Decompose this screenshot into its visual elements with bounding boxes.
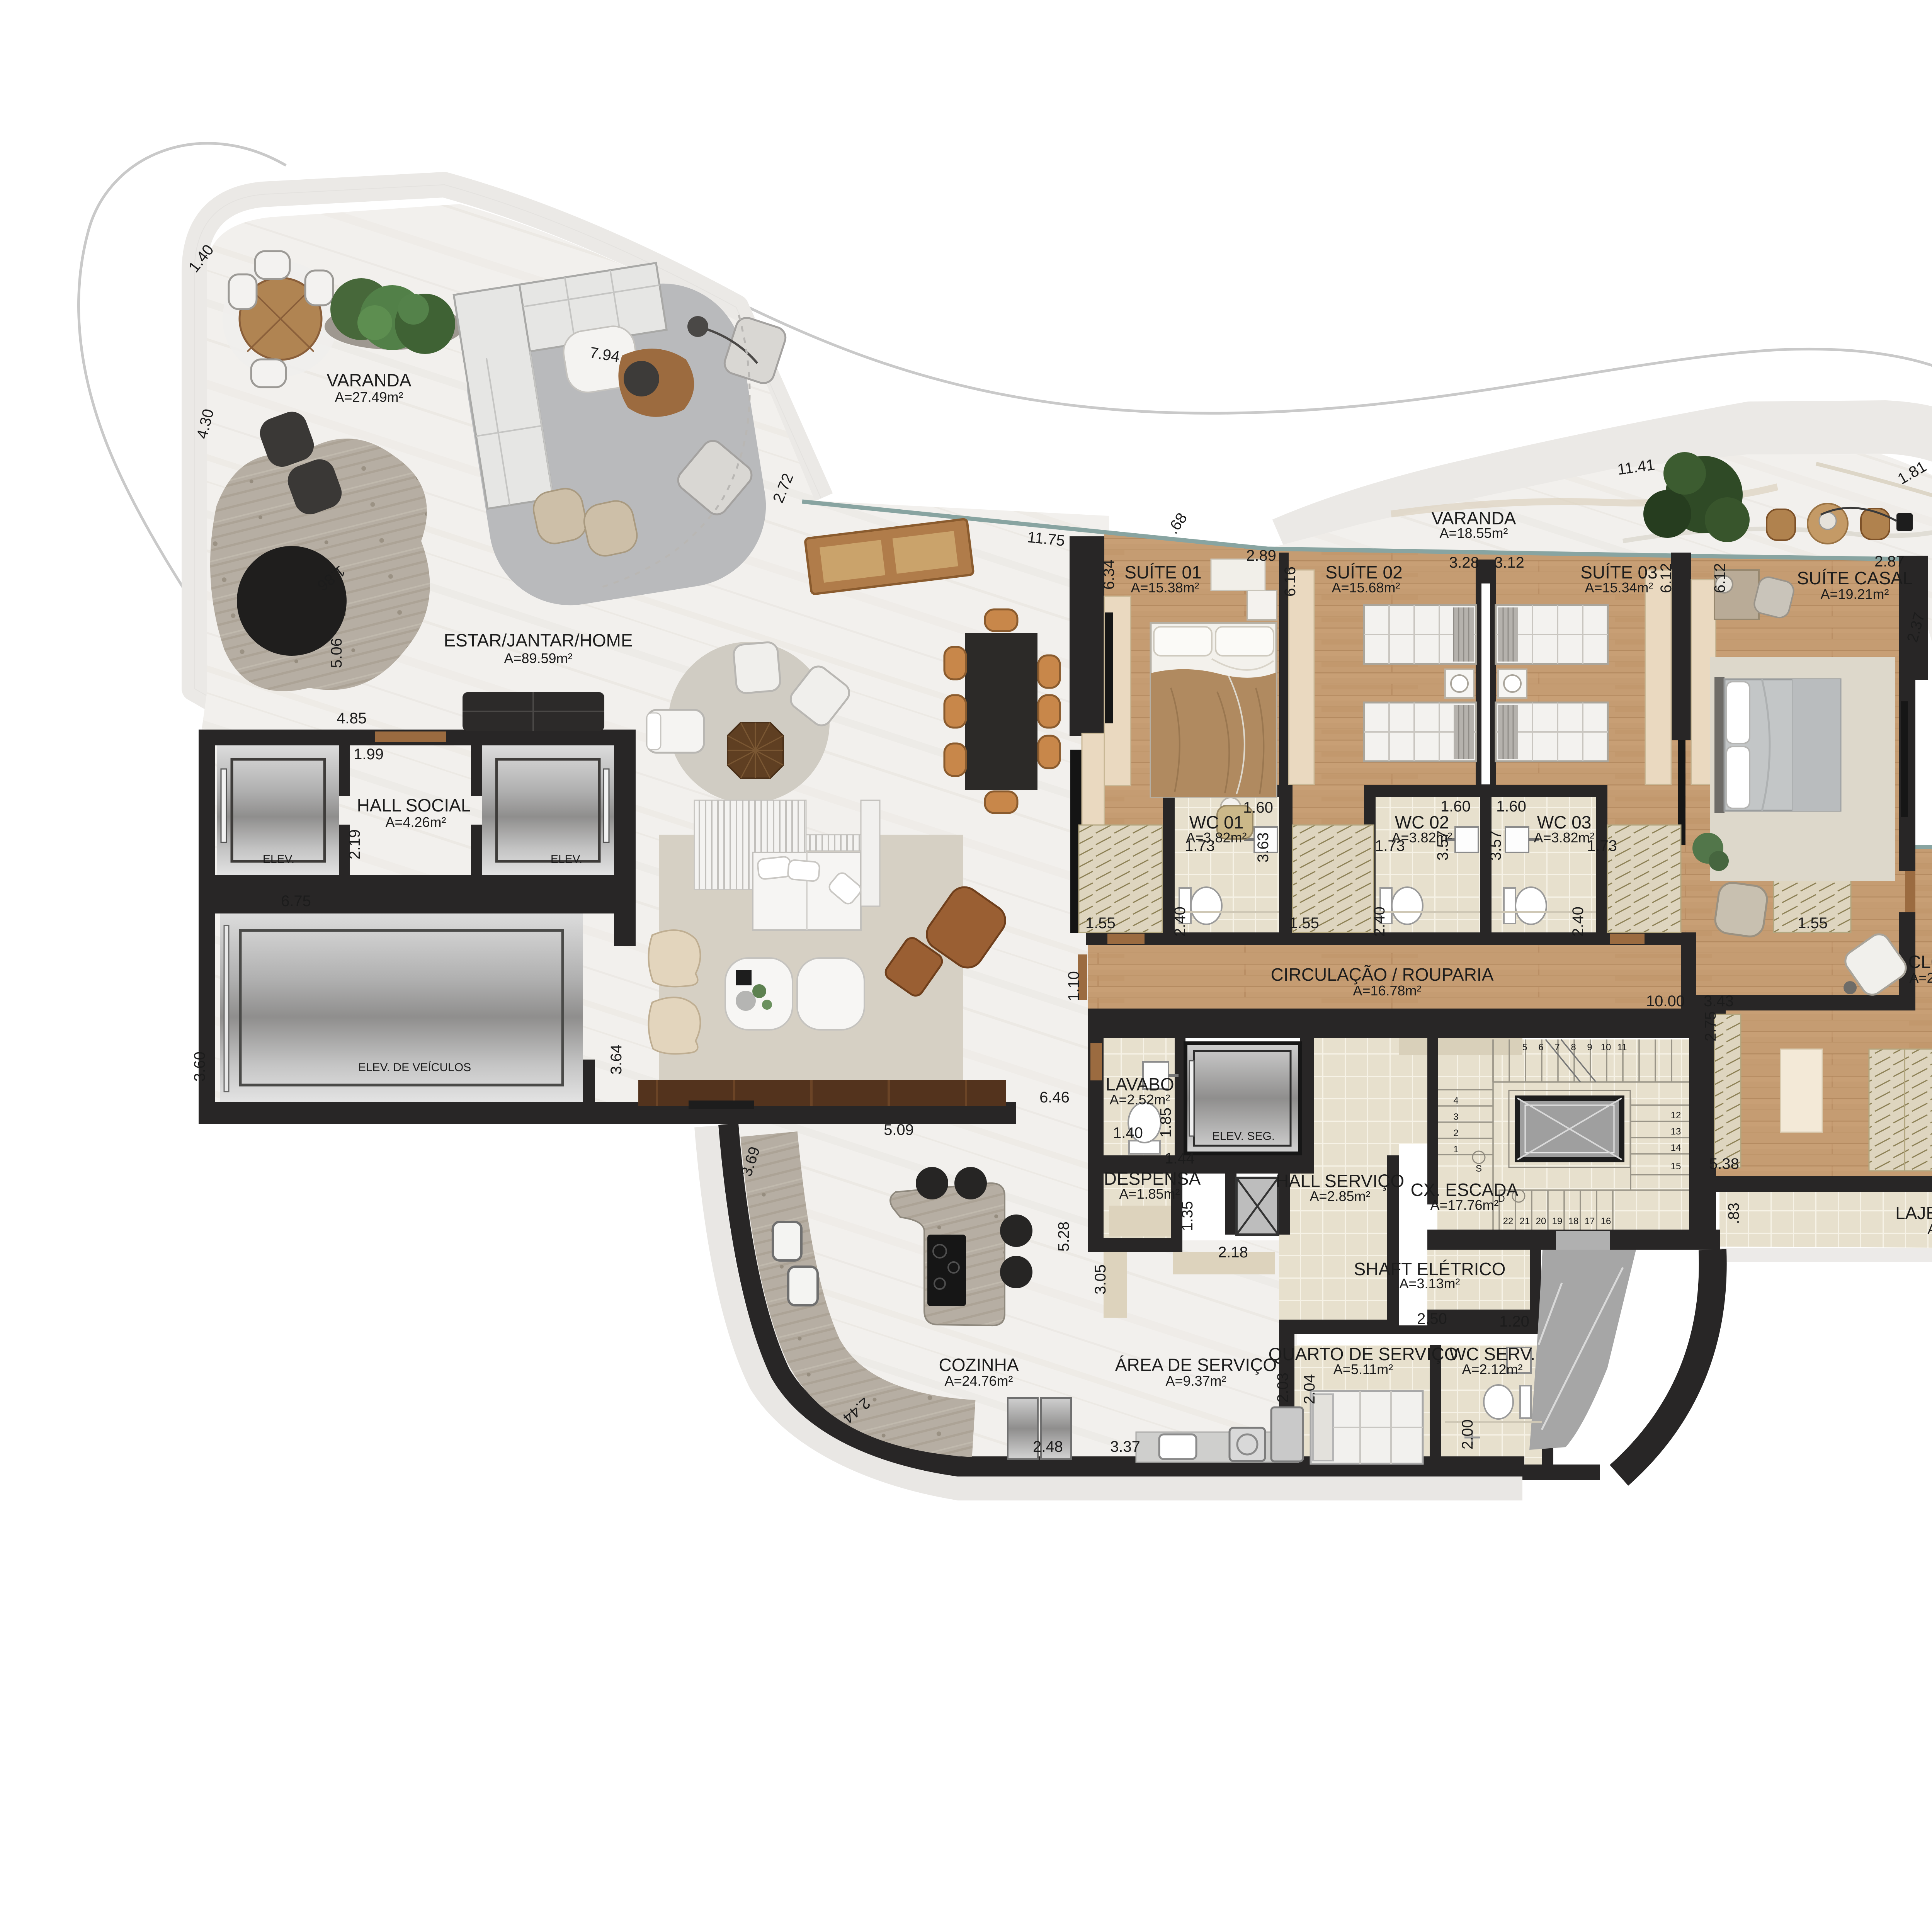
svg-text:A=9.37m²: A=9.37m² bbox=[1165, 1373, 1226, 1389]
svg-text:6.12: 6.12 bbox=[1711, 563, 1728, 593]
svg-text:3.63: 3.63 bbox=[1255, 832, 1272, 862]
svg-text:A=2.52m²: A=2.52m² bbox=[1109, 1092, 1170, 1107]
svg-text:A=3.13m²: A=3.13m² bbox=[1399, 1276, 1460, 1291]
svg-text:4: 4 bbox=[1453, 1095, 1458, 1106]
svg-text:A=89.59m²: A=89.59m² bbox=[504, 650, 572, 666]
svg-text:ELEV.: ELEV. bbox=[551, 853, 582, 866]
svg-text:ÁREA DE SERVIÇO: ÁREA DE SERVIÇO bbox=[1115, 1355, 1277, 1375]
svg-text:2.40: 2.40 bbox=[1570, 907, 1587, 937]
svg-text:A=20.04m²: A=20.04m² bbox=[1909, 970, 1932, 986]
svg-text:19: 19 bbox=[1552, 1216, 1563, 1226]
svg-text:A=19.21m²: A=19.21m² bbox=[1820, 586, 1889, 602]
svg-text:5.38: 5.38 bbox=[1709, 1155, 1739, 1172]
svg-text:1.73: 1.73 bbox=[1185, 837, 1215, 854]
svg-text:1.44: 1.44 bbox=[1165, 1150, 1195, 1167]
svg-text:ESTAR/JANTAR/HOME: ESTAR/JANTAR/HOME bbox=[444, 630, 633, 650]
svg-text:1.73: 1.73 bbox=[1587, 837, 1617, 854]
svg-text:10: 10 bbox=[1601, 1042, 1611, 1053]
svg-text:A=15.38m²: A=15.38m² bbox=[1131, 580, 1199, 595]
svg-text:6.75: 6.75 bbox=[281, 893, 311, 910]
svg-text:3.37: 3.37 bbox=[1110, 1438, 1140, 1455]
svg-text:1.55: 1.55 bbox=[1085, 915, 1116, 932]
svg-text:A=5.11m²: A=5.11m² bbox=[1333, 1361, 1393, 1377]
svg-text:3: 3 bbox=[1453, 1112, 1458, 1122]
svg-text:18: 18 bbox=[1568, 1216, 1579, 1226]
svg-text:A=2.85m²: A=2.85m² bbox=[1310, 1188, 1370, 1204]
svg-text:1.85: 1.85 bbox=[1157, 1107, 1174, 1138]
svg-text:12: 12 bbox=[1671, 1110, 1681, 1121]
svg-text:10.00: 10.00 bbox=[1646, 993, 1685, 1010]
svg-text:A=3.82m²: A=3.82m² bbox=[1534, 830, 1594, 845]
svg-text:2.40: 2.40 bbox=[1371, 907, 1388, 937]
svg-text:CIRCULAÇÃO / ROUPARIA: CIRCULAÇÃO / ROUPARIA bbox=[1271, 964, 1494, 985]
svg-text:HALL SOCIAL: HALL SOCIAL bbox=[357, 795, 471, 815]
svg-text:3.64: 3.64 bbox=[608, 1044, 625, 1075]
svg-text:2.50: 2.50 bbox=[1417, 1310, 1447, 1327]
svg-text:A=15.34m²: A=15.34m² bbox=[1585, 580, 1653, 595]
svg-text:6: 6 bbox=[1538, 1042, 1543, 1053]
svg-text:3.57: 3.57 bbox=[1487, 830, 1504, 861]
svg-text:3.57: 3.57 bbox=[1434, 830, 1451, 861]
svg-text:2.87: 2.87 bbox=[1874, 553, 1905, 570]
svg-text:21: 21 bbox=[1520, 1216, 1530, 1226]
svg-text:1.60: 1.60 bbox=[1243, 799, 1273, 816]
svg-text:15: 15 bbox=[1671, 1161, 1681, 1172]
svg-text:11: 11 bbox=[1617, 1042, 1627, 1053]
svg-text:1.35: 1.35 bbox=[1179, 1201, 1196, 1231]
svg-text:1.55: 1.55 bbox=[1289, 915, 1319, 932]
svg-text:2.04: 2.04 bbox=[1301, 1374, 1318, 1404]
svg-text:A=17.76m²: A=17.76m² bbox=[1430, 1197, 1498, 1213]
svg-text:2.75: 2.75 bbox=[1702, 1011, 1719, 1041]
svg-text:A=15.68m²: A=15.68m² bbox=[1332, 580, 1400, 595]
svg-text:1.20: 1.20 bbox=[1499, 1313, 1529, 1330]
svg-text:SUÍTE CASAL: SUÍTE CASAL bbox=[1797, 568, 1912, 588]
svg-text:6.16: 6.16 bbox=[1282, 566, 1299, 597]
svg-text:20: 20 bbox=[1536, 1216, 1546, 1226]
svg-text:22: 22 bbox=[1503, 1216, 1514, 1226]
svg-text:9: 9 bbox=[1587, 1042, 1592, 1053]
svg-text:16: 16 bbox=[1601, 1216, 1611, 1226]
svg-text:5.09: 5.09 bbox=[884, 1121, 914, 1138]
svg-text:5: 5 bbox=[1522, 1042, 1527, 1053]
svg-text:2.18: 2.18 bbox=[1218, 1244, 1248, 1261]
svg-text:A=27.49m²: A=27.49m² bbox=[335, 389, 403, 405]
svg-text:6.46: 6.46 bbox=[1039, 1089, 1070, 1106]
svg-text:ELEV. SEG.: ELEV. SEG. bbox=[1212, 1130, 1275, 1143]
svg-text:6.34: 6.34 bbox=[1100, 560, 1117, 590]
svg-text:2.48: 2.48 bbox=[1033, 1438, 1063, 1455]
svg-text:13: 13 bbox=[1671, 1126, 1681, 1137]
svg-text:A=2.12m²: A=2.12m² bbox=[1462, 1361, 1522, 1377]
svg-text:A=18.55m²: A=18.55m² bbox=[1439, 525, 1508, 541]
svg-text:VARANDA: VARANDA bbox=[327, 370, 412, 390]
svg-text:A=6.40m²: A=6.40m² bbox=[1927, 1221, 1932, 1237]
svg-text:5.06: 5.06 bbox=[328, 638, 345, 668]
svg-text:COZINHA: COZINHA bbox=[939, 1355, 1019, 1375]
svg-text:17: 17 bbox=[1585, 1216, 1595, 1226]
svg-text:14: 14 bbox=[1671, 1143, 1681, 1153]
svg-text:ELEV. DE VEÍCULOS: ELEV. DE VEÍCULOS bbox=[358, 1061, 471, 1074]
svg-text:6.12: 6.12 bbox=[1658, 563, 1675, 593]
svg-text:1.40: 1.40 bbox=[1113, 1124, 1143, 1141]
svg-text:1.10: 1.10 bbox=[1065, 971, 1082, 1001]
svg-text:3.43: 3.43 bbox=[1704, 993, 1734, 1010]
svg-text:3.28: 3.28 bbox=[1449, 554, 1479, 571]
svg-text:LAJE TÉCNICA: LAJE TÉCNICA bbox=[1895, 1203, 1932, 1223]
svg-text:2: 2 bbox=[1453, 1128, 1458, 1138]
svg-text:3.05: 3.05 bbox=[1092, 1264, 1109, 1294]
svg-text:8: 8 bbox=[1571, 1042, 1576, 1053]
svg-text:2.40: 2.40 bbox=[1172, 907, 1189, 937]
svg-text:1.60: 1.60 bbox=[1440, 798, 1471, 815]
svg-text:3.60: 3.60 bbox=[191, 1051, 208, 1082]
svg-text:A=24.76m²: A=24.76m² bbox=[944, 1373, 1013, 1389]
svg-text:7: 7 bbox=[1554, 1042, 1560, 1053]
svg-text:CLOSET: CLOSET bbox=[1908, 952, 1932, 972]
svg-text:5.28: 5.28 bbox=[1055, 1221, 1072, 1252]
svg-text:A=1.85m²: A=1.85m² bbox=[1119, 1186, 1180, 1202]
svg-text:A=16.78m²: A=16.78m² bbox=[1353, 983, 1421, 998]
svg-text:1.73: 1.73 bbox=[1375, 837, 1405, 854]
svg-text:ELEV.: ELEV. bbox=[263, 853, 294, 866]
svg-text:1.60: 1.60 bbox=[1496, 798, 1526, 815]
svg-text:2.89: 2.89 bbox=[1246, 547, 1276, 564]
svg-text:A=4.26m²: A=4.26m² bbox=[385, 814, 446, 830]
svg-text:.83: .83 bbox=[1725, 1203, 1742, 1224]
svg-text:2.00: 2.00 bbox=[1459, 1419, 1476, 1449]
svg-text:2.03: 2.03 bbox=[1274, 1373, 1291, 1403]
svg-text:1: 1 bbox=[1453, 1144, 1458, 1155]
svg-text:3.12: 3.12 bbox=[1494, 554, 1524, 571]
svg-text:4.85: 4.85 bbox=[337, 710, 367, 727]
svg-text:1.55: 1.55 bbox=[1798, 915, 1828, 932]
svg-text:2.19: 2.19 bbox=[346, 829, 363, 859]
svg-text:S: S bbox=[1476, 1163, 1482, 1174]
svg-text:1.99: 1.99 bbox=[354, 746, 384, 763]
